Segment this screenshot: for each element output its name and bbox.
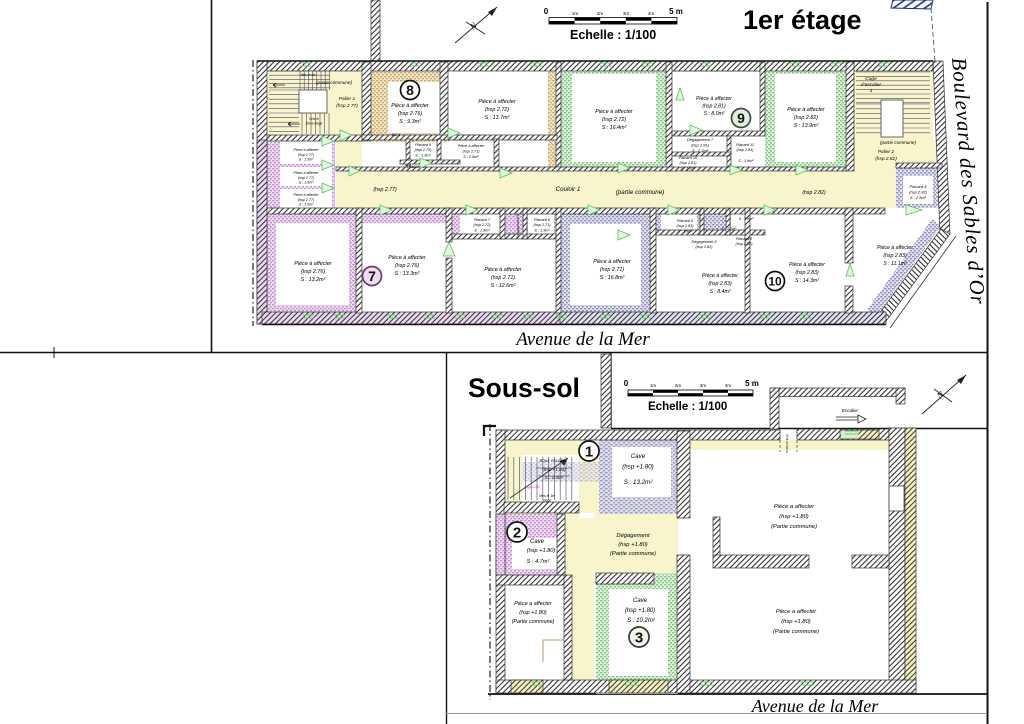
- svg-text:S : 13.9m²: S : 13.9m²: [794, 123, 819, 129]
- svg-text:Placard 11: Placard 11: [736, 143, 754, 147]
- svg-text:S : 9.3m²: S : 9.3m²: [399, 119, 421, 125]
- svg-text:(hsp +1.80): (hsp +1.80): [622, 464, 653, 471]
- svg-text:Vers le 1er: Vers le 1er: [539, 494, 556, 498]
- svg-text:Dégagement 7: Dégagement 7: [687, 137, 714, 142]
- svg-text:(hsp 2.76): (hsp 2.76): [395, 263, 419, 269]
- svg-text:Pièce a affecter: Pièce a affecter: [776, 609, 817, 615]
- svg-text:(hsp +1.80): (hsp +1.80): [625, 608, 656, 614]
- svg-text:(hsp 2.82): (hsp 2.82): [909, 190, 928, 195]
- svg-text:0: 0: [544, 7, 549, 16]
- svg-text:(hsp 2.76): (hsp 2.76): [301, 269, 325, 275]
- svg-text:WC 1: WC 1: [392, 133, 401, 137]
- svg-text:Dégagement 8: Dégagement 8: [516, 214, 520, 238]
- svg-text:Cage: Cage: [865, 76, 877, 82]
- svg-text:(partie commune): (partie commune): [880, 140, 916, 145]
- svg-text:S : 8.0m²: S : 8.0m²: [703, 111, 724, 117]
- svg-text:étage: étage: [543, 499, 552, 503]
- svg-text:Pièce à affecter: Pièce à affecter: [787, 107, 825, 113]
- svg-text:3: 3: [870, 88, 873, 94]
- svg-text:(hsp 2.81): (hsp 2.81): [691, 142, 710, 147]
- svg-text:7: 7: [368, 268, 376, 284]
- svg-text:Placard 8: Placard 8: [534, 218, 551, 222]
- svg-text:3m: 3m: [700, 383, 707, 388]
- svg-text:S : 13.7m²: S : 13.7m²: [485, 115, 510, 121]
- svg-text:(hsp 2.83): (hsp 2.83): [676, 224, 694, 228]
- svg-text:Pièce à affecter: Pièce à affecter: [458, 144, 485, 148]
- svg-text:(hsp 2.81): (hsp 2.81): [679, 161, 697, 165]
- svg-text:(hsp 2.81): (hsp 2.81): [736, 148, 754, 152]
- svg-text:(hsp +1.80): (hsp +1.80): [618, 542, 648, 548]
- svg-text:(hsp 2.82): (hsp 2.82): [735, 242, 753, 246]
- svg-text:(hsp 2.71): (hsp 2.71): [533, 223, 551, 227]
- svg-text:(hsp 2.77): (hsp 2.77): [336, 103, 358, 109]
- svg-text:2m: 2m: [597, 11, 604, 16]
- svg-text:(hsp 2.71): (hsp 2.71): [600, 267, 624, 273]
- svg-text:1m: 1m: [572, 11, 579, 16]
- svg-text:(hsp 2.82): (hsp 2.82): [695, 245, 713, 249]
- svg-text:1: 1: [585, 443, 593, 460]
- svg-text:Pièce à affecter: Pièce à affecter: [789, 262, 825, 268]
- svg-text:S : 1.3m²: S : 1.3m²: [534, 228, 550, 232]
- svg-text:(hsp 2.81): (hsp 2.81): [702, 104, 726, 110]
- svg-text:(hsp +1.80): (hsp +1.80): [519, 610, 547, 616]
- svg-text:S : 1.6m²: S : 1.6m²: [299, 181, 314, 185]
- svg-text:S : 8.4m²: S : 8.4m²: [709, 289, 730, 295]
- svg-text:(hsp 2.83): (hsp 2.83): [795, 270, 819, 276]
- svg-text:Pièce à affecter: Pièce à affecter: [294, 148, 320, 152]
- svg-text:(hsp 2.72): (hsp 2.72): [485, 107, 509, 113]
- svg-text:(Partie commune): (Partie commune): [512, 619, 555, 625]
- svg-text:Pièce à affecter: Pièce à affecter: [484, 267, 522, 273]
- svg-text:10: 10: [768, 274, 782, 288]
- svg-text:Cave: Cave: [631, 453, 646, 460]
- svg-text:4m: 4m: [725, 383, 732, 388]
- svg-text:Dégagement: Dégagement: [616, 533, 650, 539]
- svg-text:(hsp 2.77): (hsp 2.77): [298, 176, 314, 180]
- svg-text:Echelle : 1/100: Echelle : 1/100: [570, 28, 656, 42]
- svg-text:S : 2.7m²: S : 2.7m²: [692, 148, 709, 153]
- svg-text:Dégagement 5: Dégagement 5: [692, 240, 718, 244]
- svg-text:(hsp +1.80): (hsp +1.80): [527, 548, 556, 554]
- svg-text:(hsp 2.83): (hsp 2.83): [883, 253, 907, 259]
- svg-text:Placard 7: Placard 7: [474, 218, 491, 222]
- svg-text:3m: 3m: [623, 11, 630, 16]
- svg-text:Placard 5: Placard 5: [736, 237, 753, 241]
- svg-text:Vers le: Vers le: [309, 117, 319, 121]
- svg-text:2: 2: [513, 524, 521, 541]
- svg-text:Vers le rdc: Vers le rdc: [300, 73, 316, 77]
- svg-text:(hsp +1.80): (hsp +1.80): [779, 514, 809, 520]
- svg-text:(hsp 2.77): (hsp 2.77): [298, 153, 314, 157]
- svg-text:Pièce à affecter: Pièce à affecter: [294, 193, 320, 197]
- svg-text:(hsp 2.83): (hsp 2.83): [708, 281, 732, 287]
- svg-text:4m: 4m: [648, 11, 655, 16]
- svg-text:Pièce à affecter: Pièce à affecter: [478, 99, 516, 105]
- svg-text:0: 0: [624, 379, 629, 388]
- svg-text:(Partie commune): (Partie commune): [771, 524, 817, 530]
- svg-text:S : 1.1m²: S : 1.1m²: [680, 166, 696, 170]
- svg-text:Avenue de la Mer: Avenue de la Mer: [751, 696, 879, 716]
- svg-text:Sous-sol: Sous-sol: [468, 373, 580, 403]
- svg-text:Pièce à affecter: Pièce à affecter: [294, 261, 332, 267]
- svg-text:9: 9: [737, 110, 745, 126]
- svg-text:hsp 1.80: hsp 1.80: [524, 484, 540, 489]
- svg-text:Pièce a affecter: Pièce a affecter: [514, 601, 552, 607]
- svg-text:S : 2.9m²: S : 2.9m²: [463, 155, 479, 159]
- svg-text:Pièce à affecter: Pièce à affecter: [877, 245, 913, 251]
- svg-text:(hsp 2.82): (hsp 2.82): [802, 190, 826, 196]
- svg-text:(hsp 2.72): (hsp 2.72): [602, 117, 626, 123]
- svg-text:Pièce à affecter: Pièce à affecter: [388, 255, 426, 261]
- svg-text:Palier 2: Palier 2: [878, 149, 895, 155]
- svg-text:S : 13.2m²: S : 13.2m²: [624, 479, 653, 486]
- svg-text:Pièce à affecter: Pièce à affecter: [702, 273, 738, 279]
- svg-text:Vent aération: Vent aération: [785, 434, 789, 453]
- svg-text:2ème étage: 2ème étage: [305, 122, 323, 126]
- svg-text:Avenue de la Mer: Avenue de la Mer: [514, 329, 650, 350]
- svg-text:(hsp 2.82): (hsp 2.82): [875, 156, 897, 162]
- svg-text:S : 2.8m²: S : 2.8m²: [910, 195, 927, 200]
- svg-text:S : 1.6m²: S : 1.6m²: [738, 159, 754, 163]
- svg-text:1m: 1m: [650, 383, 657, 388]
- svg-text:Cave: Cave: [633, 598, 648, 604]
- svg-text:Placard 4: Placard 4: [910, 184, 928, 189]
- svg-text:Sous escalier: Sous escalier: [539, 458, 567, 463]
- svg-text:(hsp 2.71): (hsp 2.71): [491, 275, 515, 281]
- svg-text:d’escalier: d’escalier: [861, 82, 882, 88]
- svg-text:S : 13.3m²: S : 13.3m²: [395, 271, 420, 277]
- svg-text:S : 10.2m²: S : 10.2m²: [627, 618, 656, 624]
- svg-text:Pièce à affecter: Pièce à affecter: [696, 96, 732, 102]
- svg-text:(Partie commune): (Partie commune): [610, 551, 656, 557]
- svg-text:(partie commune): (partie commune): [616, 189, 665, 196]
- svg-text:S : 4.7m²: S : 4.7m²: [527, 559, 551, 565]
- svg-text:(hsp +1.80): (hsp +1.80): [781, 619, 811, 625]
- svg-text:(partie commune): (partie commune): [316, 80, 352, 85]
- svg-text:S : 13.2m²: S : 13.2m²: [301, 277, 326, 283]
- svg-text:(hsp 2.76): (hsp 2.76): [398, 111, 422, 117]
- svg-text:S : 16.4m²: S : 16.4m²: [602, 125, 627, 131]
- svg-text:S : 1.5m²: S : 1.5m²: [299, 158, 314, 162]
- svg-text:S : 1.0m²: S : 1.0m²: [739, 217, 754, 221]
- svg-text:S : 12.6m²: S : 12.6m²: [491, 283, 516, 289]
- svg-text:Pièce à affecter: Pièce à affecter: [595, 109, 633, 115]
- svg-text:5 m: 5 m: [745, 379, 759, 388]
- svg-text:(hsp 2.72): (hsp 2.72): [473, 223, 491, 227]
- svg-text:Couloir 1: Couloir 1: [556, 186, 581, 193]
- svg-text:Pièce à affecter: Pièce à affecter: [593, 259, 631, 265]
- svg-text:Cave: Cave: [530, 539, 545, 545]
- svg-text:Pièce a affecter: Pièce a affecter: [774, 504, 815, 510]
- svg-text:(Partie commune): (Partie commune): [773, 629, 819, 635]
- svg-text:3: 3: [635, 629, 643, 646]
- svg-text:2m: 2m: [675, 383, 682, 388]
- svg-text:S : 11.1m²: S : 11.1m²: [883, 261, 907, 267]
- svg-text:S : 1.6m²: S : 1.6m²: [299, 203, 314, 207]
- svg-text:(hsp 2.77): (hsp 2.77): [373, 187, 397, 193]
- svg-text:S : 1.3m²: S : 1.3m²: [415, 153, 431, 157]
- svg-text:Escalier: Escalier: [842, 408, 859, 413]
- svg-text:S : 2.7m²: S : 2.7m²: [722, 227, 737, 231]
- svg-text:Pièce à affecter: Pièce à affecter: [294, 171, 320, 175]
- svg-text:S : 1.9m²: S : 1.9m²: [474, 228, 490, 232]
- svg-text:(hsp 2.75): (hsp 2.75): [414, 148, 432, 152]
- svg-text:(hsp 2.77): (hsp 2.77): [298, 198, 314, 202]
- svg-text:(hsp 2.71): (hsp 2.71): [462, 149, 480, 153]
- svg-text:Placard 9: Placard 9: [415, 143, 432, 147]
- svg-text:5 m: 5 m: [669, 7, 683, 16]
- svg-text:Palier 1: Palier 1: [339, 96, 356, 102]
- svg-text:Pièce à affecter: Pièce à affecter: [391, 103, 429, 109]
- svg-text:Placard 6: Placard 6: [677, 219, 694, 223]
- svg-text:1er étage: 1er étage: [743, 5, 862, 35]
- svg-text:S : 1.9m²: S : 1.9m²: [677, 229, 693, 233]
- svg-text:S : 16.8m²: S : 16.8m²: [600, 275, 625, 281]
- svg-text:8: 8: [406, 82, 414, 98]
- svg-text:(hsp 2.82): (hsp 2.82): [794, 115, 818, 121]
- svg-text:S : 14.3m²: S : 14.3m²: [795, 278, 819, 284]
- svg-text:Echelle : 1/100: Echelle : 1/100: [648, 401, 727, 413]
- svg-text:Placard 10: Placard 10: [679, 156, 698, 160]
